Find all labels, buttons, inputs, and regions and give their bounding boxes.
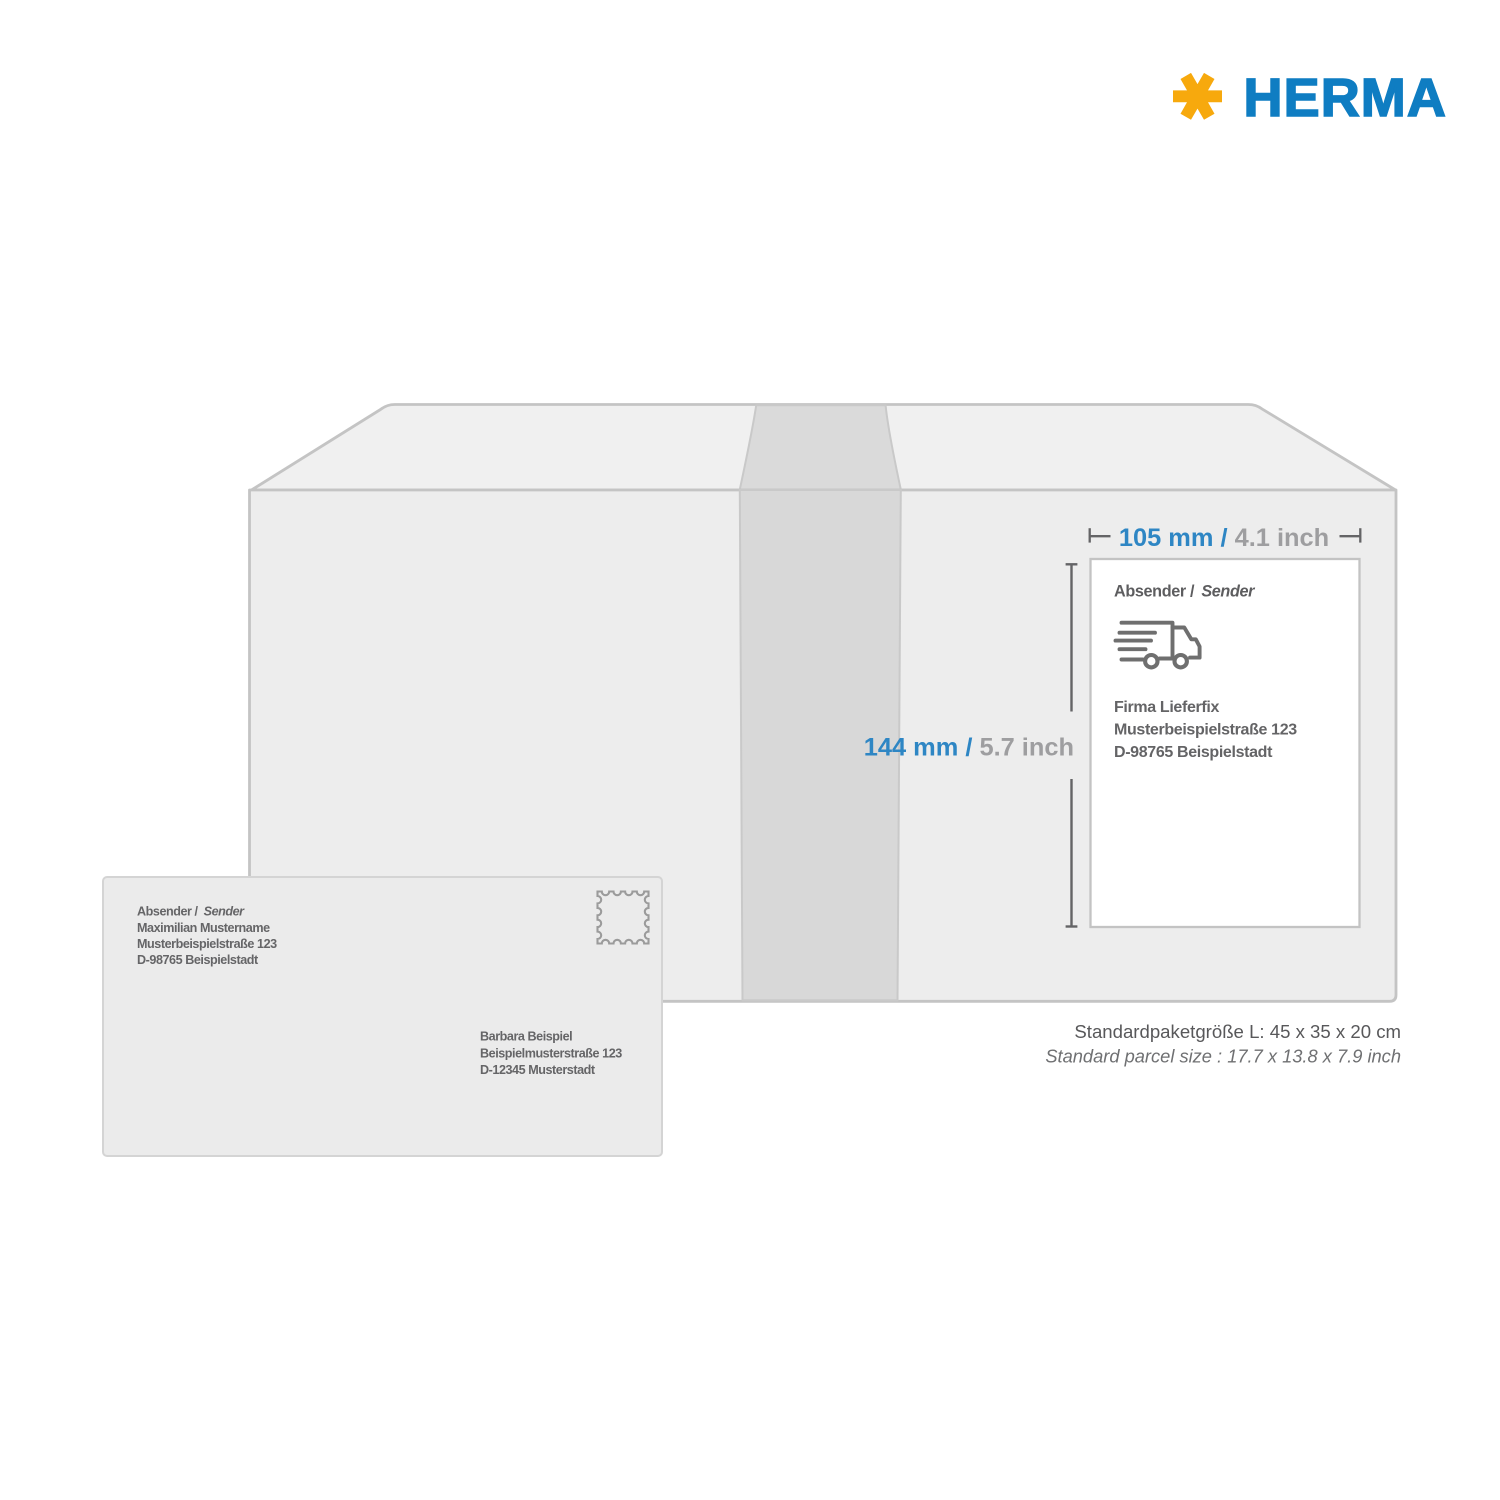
svg-text:Musterbeispielstraße 123: Musterbeispielstraße 123 bbox=[1114, 722, 1297, 739]
svg-text:105 mm / 4.1 inch: 105 mm / 4.1 inch bbox=[1119, 524, 1329, 552]
svg-text:Standard parcel size : 17.7 x: Standard parcel size : 17.7 x 13.8 x 7.9… bbox=[1045, 1046, 1401, 1067]
svg-text:Absender / Sender: Absender / Sender bbox=[1114, 583, 1256, 601]
svg-text:Beispielmusterstraße 123: Beispielmusterstraße 123 bbox=[480, 1046, 622, 1060]
svg-text:Barbara Beispiel: Barbara Beispiel bbox=[480, 1030, 572, 1044]
svg-text:Absender / Sender: Absender / Sender bbox=[137, 905, 245, 919]
svg-text:Musterbeispielstraße 123: Musterbeispielstraße 123 bbox=[137, 937, 277, 951]
svg-text:HERMA: HERMA bbox=[1244, 68, 1448, 128]
svg-text:Firma Lieferfix: Firma Lieferfix bbox=[1114, 699, 1219, 716]
svg-text:144 mm / 5.7 inch: 144 mm / 5.7 inch bbox=[864, 734, 1074, 762]
svg-text:D-12345 Musterstadt: D-12345 Musterstadt bbox=[480, 1063, 596, 1077]
svg-text:Maximilian Mustername: Maximilian Mustername bbox=[137, 921, 270, 935]
svg-text:D-98765 Beispielstadt: D-98765 Beispielstadt bbox=[1114, 744, 1273, 761]
svg-text:Standardpaketgröße L: 45 x 35: Standardpaketgröße L: 45 x 35 x 20 cm bbox=[1074, 1021, 1401, 1042]
svg-text:D-98765 Beispielstadt: D-98765 Beispielstadt bbox=[137, 953, 259, 967]
